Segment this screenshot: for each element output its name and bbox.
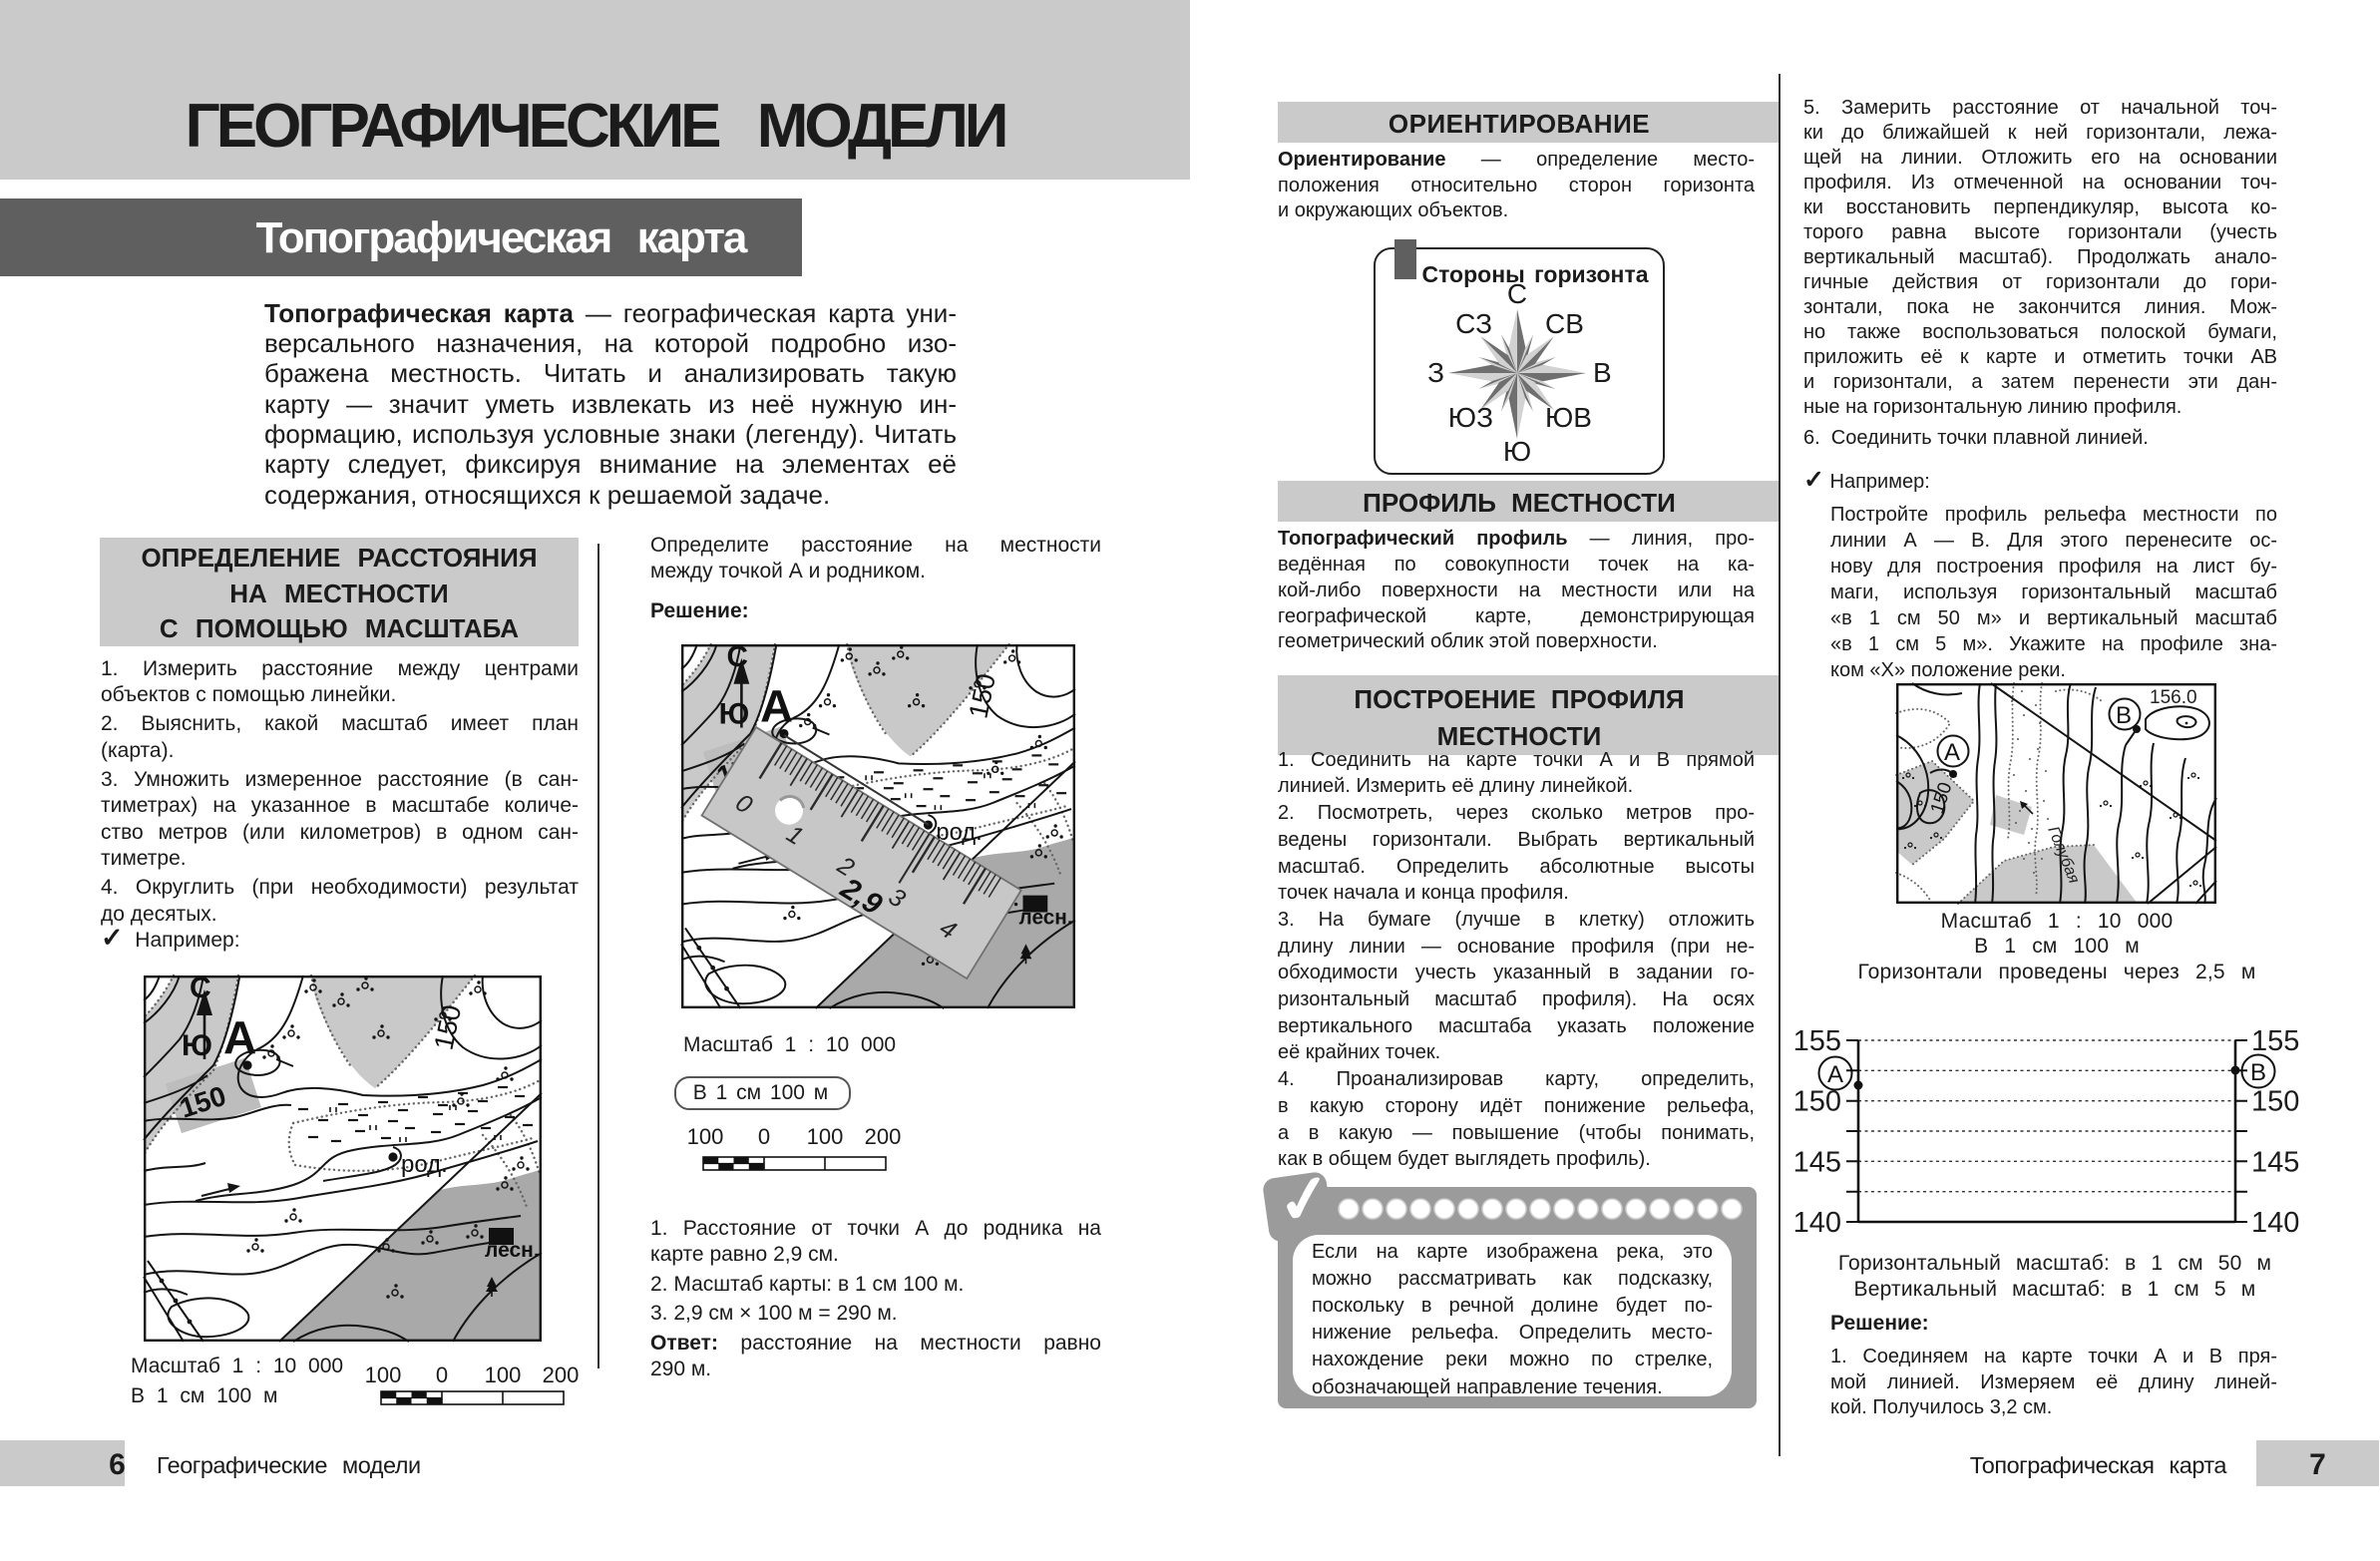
svg-text:100: 100 (687, 1124, 724, 1149)
svg-text:145: 145 (1793, 1146, 1841, 1178)
svg-text:100: 100 (807, 1124, 844, 1149)
svg-text:100: 100 (365, 1363, 402, 1387)
svg-text:140: 140 (2251, 1207, 2299, 1239)
svg-text:155: 155 (1793, 1025, 1841, 1057)
svg-text:ЮЗ: ЮЗ (1448, 402, 1493, 433)
svg-text:100: 100 (485, 1363, 522, 1387)
svg-text:В: В (1593, 357, 1612, 388)
svg-text:200: 200 (543, 1363, 580, 1387)
svg-text:150: 150 (1793, 1086, 1841, 1118)
svg-text:З: З (1427, 357, 1444, 388)
svg-text:СВ: СВ (1545, 308, 1584, 339)
svg-text:140: 140 (1793, 1207, 1841, 1239)
svg-text:СЗ: СЗ (1455, 308, 1492, 339)
svg-text:200: 200 (865, 1124, 902, 1149)
svg-text:0: 0 (758, 1124, 770, 1149)
svg-text:145: 145 (2251, 1146, 2299, 1178)
svg-text:В: В (2116, 702, 2132, 729)
svg-text:156.0: 156.0 (2150, 687, 2197, 708)
svg-text:А: А (1827, 1061, 1843, 1088)
svg-text:0: 0 (436, 1363, 448, 1387)
svg-text:В: В (2250, 1059, 2266, 1086)
svg-text:ЮВ: ЮВ (1545, 402, 1592, 433)
svg-text:Ю: Ю (1503, 436, 1531, 467)
svg-text:А: А (1944, 739, 1960, 766)
svg-text:150: 150 (2251, 1086, 2299, 1118)
svg-text:С: С (1507, 278, 1527, 309)
svg-text:155: 155 (2251, 1025, 2299, 1057)
